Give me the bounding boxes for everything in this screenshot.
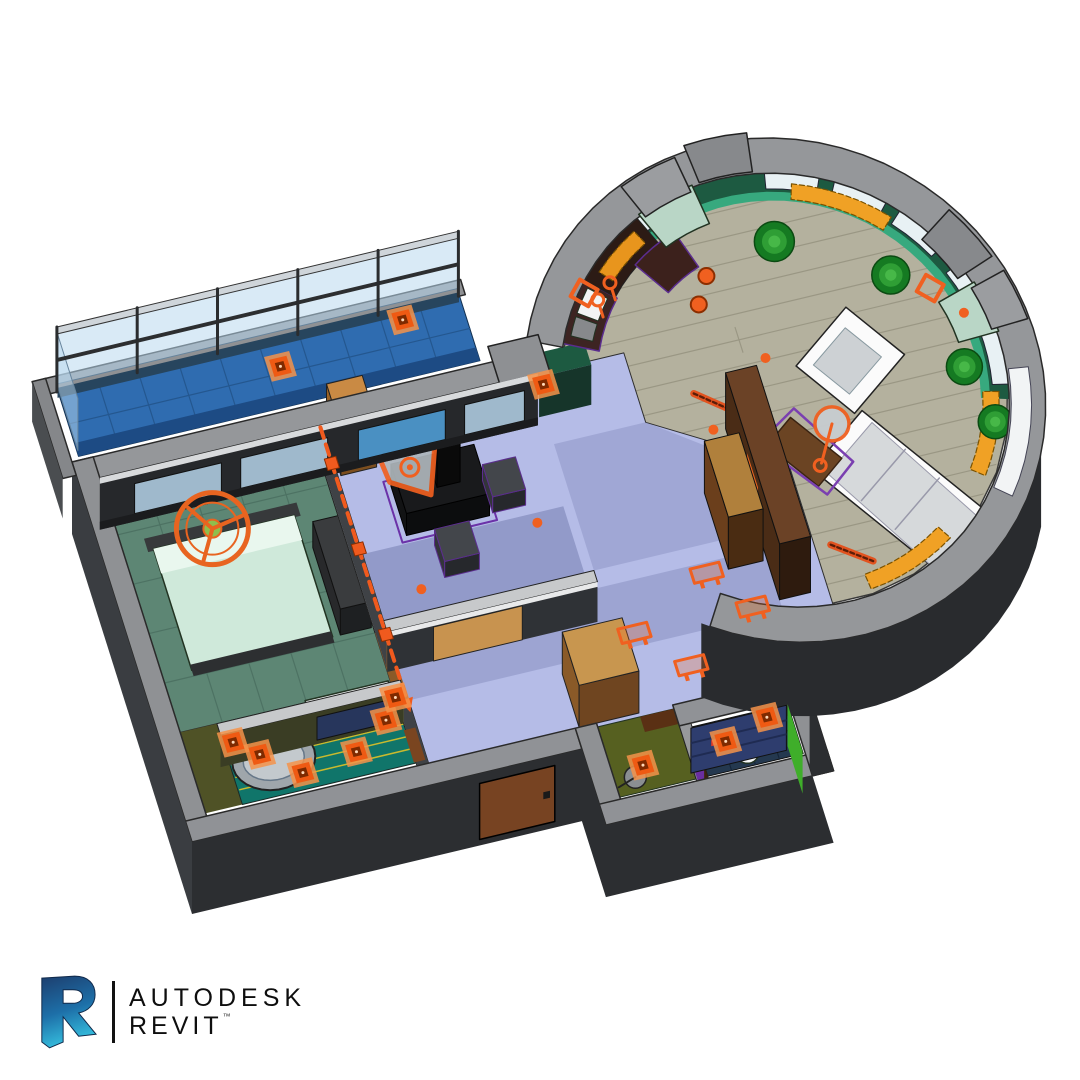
plant — [885, 269, 896, 280]
outlet-symbol — [641, 764, 644, 767]
outlet-symbol — [542, 383, 545, 386]
logo-divider — [112, 981, 115, 1043]
drafting-table-marker-dot — [407, 464, 413, 470]
autodesk-revit-logo: AUTODESK REVIT™ — [36, 974, 306, 1050]
outlet-symbol — [394, 696, 397, 699]
logo-brand-text: AUTODESK — [129, 984, 306, 1012]
tall-cabinet — [728, 509, 763, 569]
trademark-symbol: ™ — [223, 1012, 235, 1021]
floor-dot-marker — [959, 308, 969, 318]
outlet-symbol — [724, 740, 727, 743]
revit-r-shape — [42, 976, 96, 1048]
desk-monitor — [437, 442, 460, 488]
media-wall — [780, 536, 811, 599]
outlet-symbol — [279, 365, 282, 368]
revit-floorplan-render — [0, 0, 1080, 1080]
plant — [768, 235, 780, 247]
revit-r-icon — [36, 974, 98, 1050]
outlet-symbol — [232, 741, 235, 744]
outlet-symbol — [301, 771, 304, 774]
plant — [990, 417, 1000, 427]
outlet-symbol — [384, 719, 387, 722]
floor-dot-marker — [708, 425, 718, 435]
bar-stool — [698, 268, 714, 284]
floor-dot-marker — [761, 353, 771, 363]
page: AUTODESK REVIT™ — [0, 0, 1080, 1080]
plant — [959, 361, 970, 372]
logo-product-text: REVIT™ — [129, 1012, 306, 1040]
bar-stool — [691, 296, 707, 312]
floor-dot-marker — [532, 518, 542, 528]
outlet-symbol — [355, 750, 358, 753]
floor-dot-marker — [416, 584, 426, 594]
outlet-symbol — [258, 753, 261, 756]
outlet-symbol — [401, 318, 404, 321]
outlet-symbol — [765, 716, 768, 719]
